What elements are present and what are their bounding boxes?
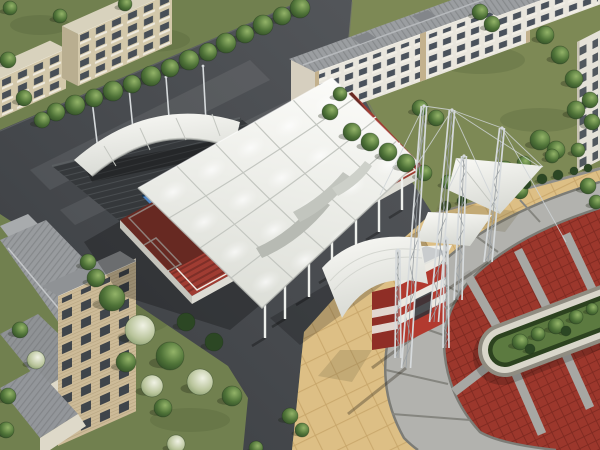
shrub [570,167,578,175]
tree [290,0,310,18]
tree [156,342,184,370]
tree [154,399,172,417]
blossom-tree [141,375,163,397]
mast-chord [448,238,449,348]
tree [531,327,545,341]
tree [397,154,415,172]
blossom-tree [125,315,155,345]
tree [582,92,598,108]
tree [428,110,444,126]
tree [282,408,298,424]
mast-chord [395,250,396,358]
tree [571,143,585,157]
tree [472,4,488,20]
tree [34,112,50,128]
tree [589,195,600,209]
tree [416,165,432,181]
gate-side-facade [372,286,398,350]
tree [361,133,379,151]
shrub [584,164,592,172]
blossom-tree [27,351,45,369]
shrub [177,313,195,331]
tree [295,423,309,437]
lattice-mast [395,248,401,358]
tree [580,178,596,194]
tree [545,149,559,163]
tree [16,90,32,106]
support-column [264,305,266,338]
blossom-tree [187,369,213,395]
tree [80,254,96,270]
tree [65,95,85,115]
tree [0,422,14,438]
tree [343,123,361,141]
support-column [378,199,380,232]
tree [530,130,550,150]
support-column [401,177,403,210]
pole-tip [202,65,205,68]
tree [551,46,569,64]
stone-quoin [420,32,426,82]
tree [333,87,347,101]
tree [199,43,217,61]
tree [161,59,179,77]
shrub [525,344,535,354]
tree [123,75,141,93]
tree [53,9,67,23]
support-column [284,286,286,319]
tree [87,269,105,287]
tree [0,52,16,68]
render-canvas [0,0,600,450]
tree [536,26,554,44]
tree [222,386,242,406]
mast-cap [396,248,399,251]
tree [484,16,500,32]
tree [253,15,273,35]
side-facade [62,26,78,86]
tree [12,322,28,338]
shrub [205,333,223,351]
lattice-mast [443,236,449,348]
tree [584,114,600,130]
shrub [561,326,571,336]
tree [3,1,17,15]
tree [322,104,338,120]
support-column [308,264,310,297]
tree [379,143,397,161]
tree [565,70,583,88]
tree [567,101,585,119]
tree [116,352,136,372]
shrub [553,170,563,180]
mast-cap [444,236,447,239]
blossom-tree [167,435,185,450]
tree [236,25,254,43]
tree [569,310,583,324]
mast-chord [443,238,444,348]
tree [85,89,103,107]
tree [141,66,161,86]
aerial-render: Aerial 3D architectural rendering: white… [0,0,600,450]
tree [273,7,291,25]
tree [0,388,16,404]
tree [103,81,123,101]
tree [99,285,125,311]
tree [118,0,132,11]
tree [586,303,598,315]
tree [179,50,199,70]
mast-chord [400,250,401,358]
shrub [537,174,547,184]
tree [216,33,236,53]
